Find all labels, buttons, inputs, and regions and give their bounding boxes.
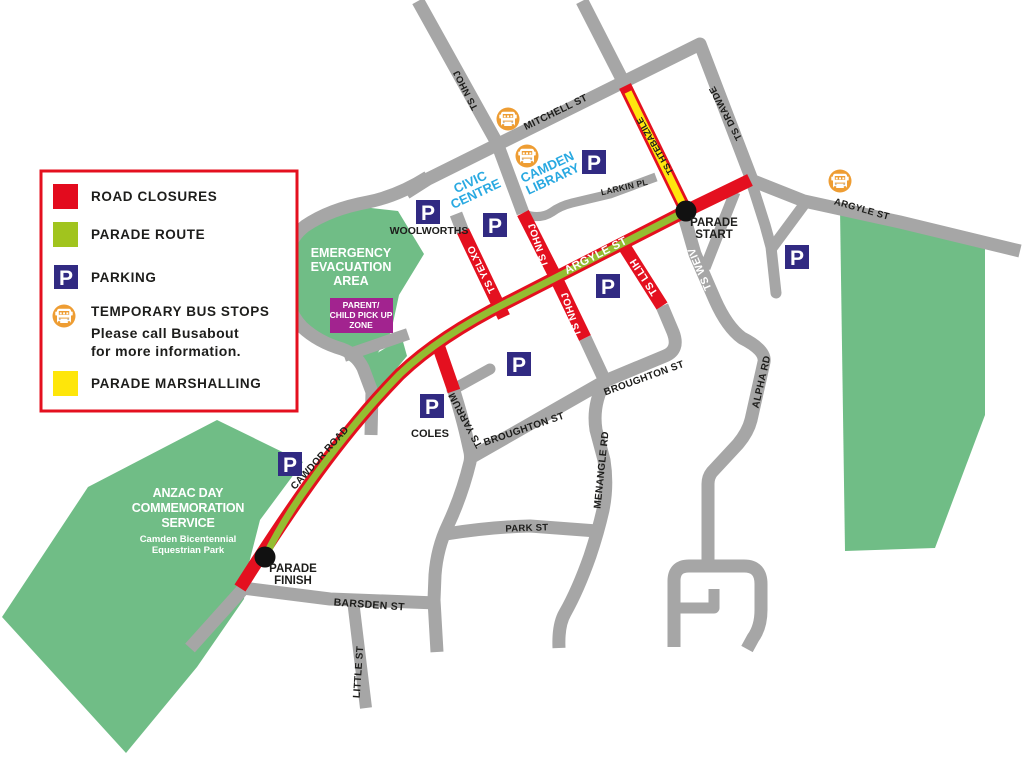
svg-text:PARK ST: PARK ST: [505, 522, 548, 534]
svg-text:for more information.: for more information.: [91, 343, 241, 359]
svg-text:Camden BicentennialEquestrian: Camden BicentennialEquestrian Park: [140, 534, 237, 556]
svg-text:COLES: COLES: [411, 428, 449, 440]
svg-text:PARADESTART: PARADESTART: [690, 217, 738, 241]
svg-text:WOOLWORTHS: WOOLWORTHS: [390, 225, 469, 237]
svg-text:PARKING: PARKING: [91, 270, 156, 285]
svg-text:PARADE MARSHALLING: PARADE MARSHALLING: [91, 376, 261, 391]
svg-text:ROAD CLOSURES: ROAD CLOSURES: [91, 189, 217, 204]
svg-text:TEMPORARY BUS STOPS: TEMPORARY BUS STOPS: [91, 304, 269, 319]
svg-text:PARADE ROUTE: PARADE ROUTE: [91, 227, 205, 242]
svg-text:PARADEFINISH: PARADEFINISH: [269, 563, 317, 587]
svg-text:Please call Busabout: Please call Busabout: [91, 325, 239, 341]
